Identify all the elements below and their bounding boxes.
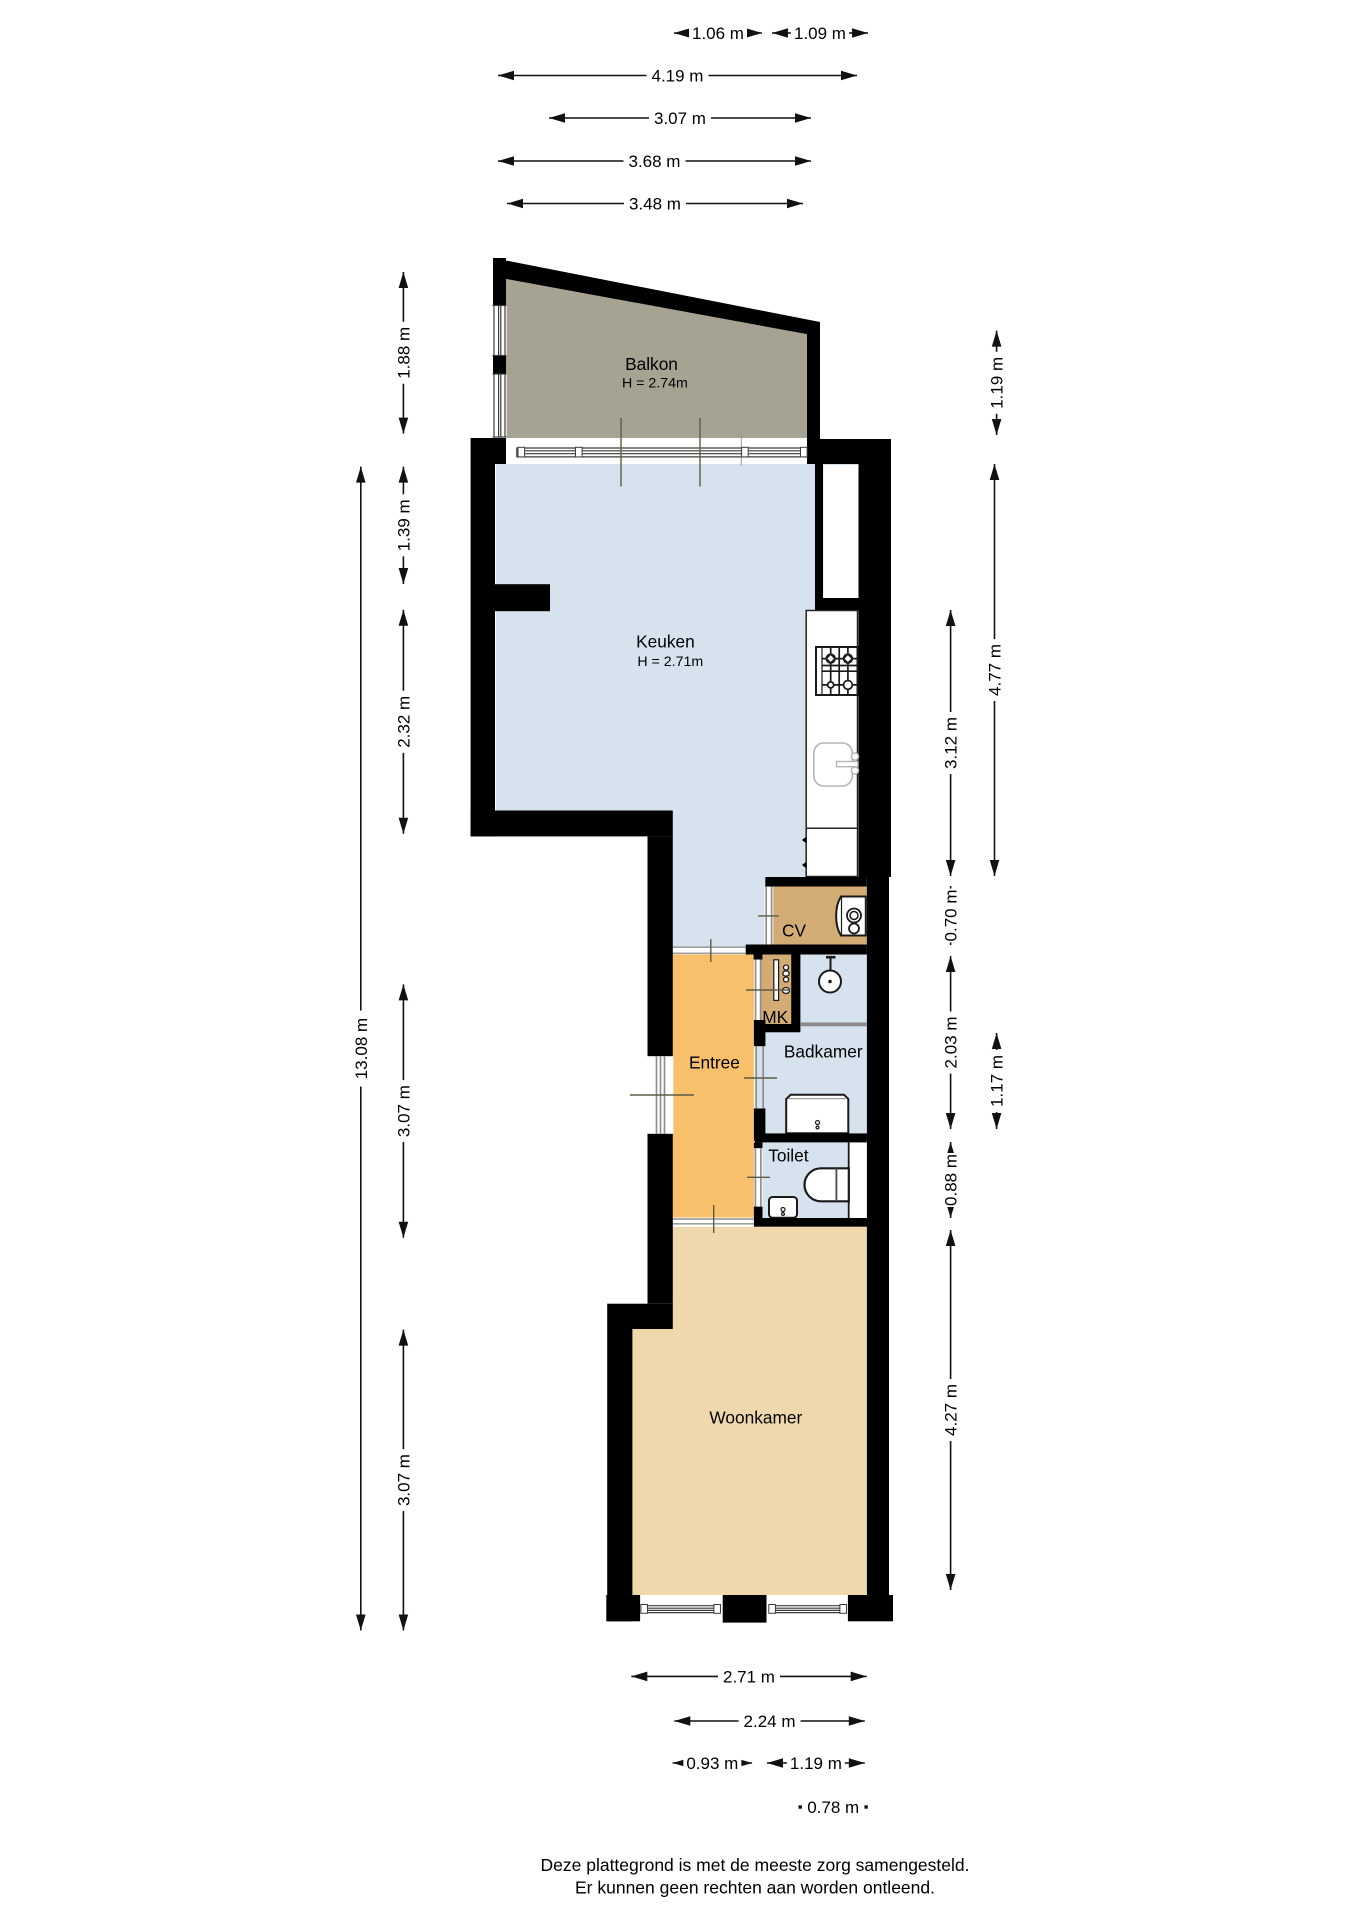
svg-text:1.39 m: 1.39 m xyxy=(394,499,413,551)
svg-text:Balkon: Balkon xyxy=(625,354,678,374)
svg-text:CV: CV xyxy=(782,921,806,941)
svg-text:0.70 m: 0.70 m xyxy=(942,890,961,942)
svg-text:1.09 m: 1.09 m xyxy=(794,24,846,43)
svg-text:H = 2.71m: H = 2.71m xyxy=(637,654,703,670)
svg-text:0.88 m: 0.88 m xyxy=(942,1154,961,1206)
svg-text:Toilet: Toilet xyxy=(768,1146,809,1166)
svg-text:2.32 m: 2.32 m xyxy=(394,696,413,748)
svg-text:2.03 m: 2.03 m xyxy=(942,1017,961,1069)
svg-text:1.19 m: 1.19 m xyxy=(988,357,1007,409)
svg-text:0.93 m: 0.93 m xyxy=(686,1754,738,1773)
svg-text:1.88 m: 1.88 m xyxy=(394,327,413,379)
svg-text:Deze plattegrond is met de mee: Deze plattegrond is met de meeste zorg s… xyxy=(541,1855,970,1875)
svg-text:2.24 m: 2.24 m xyxy=(744,1712,796,1731)
svg-text:Keuken: Keuken xyxy=(636,632,695,652)
svg-text:3.07 m: 3.07 m xyxy=(394,1085,413,1137)
svg-text:MK: MK xyxy=(762,1007,788,1027)
svg-text:4.19 m: 4.19 m xyxy=(652,67,704,86)
svg-text:3.12 m: 3.12 m xyxy=(942,717,961,769)
svg-text:2.71 m: 2.71 m xyxy=(723,1667,775,1686)
svg-text:Entree: Entree xyxy=(689,1052,740,1072)
svg-text:Badkamer: Badkamer xyxy=(784,1042,863,1062)
svg-text:3.68 m: 3.68 m xyxy=(629,152,681,171)
svg-text:0.78 m: 0.78 m xyxy=(807,1798,859,1817)
svg-text:4.27 m: 4.27 m xyxy=(942,1384,961,1436)
svg-text:1.19 m: 1.19 m xyxy=(790,1754,842,1773)
svg-text:3.07 m: 3.07 m xyxy=(394,1454,413,1506)
svg-text:3.07 m: 3.07 m xyxy=(654,109,706,128)
svg-text:4.77 m: 4.77 m xyxy=(986,644,1005,696)
svg-text:H = 2.74m: H = 2.74m xyxy=(622,375,688,391)
svg-text:1.17 m: 1.17 m xyxy=(988,1055,1007,1107)
svg-text:1.06 m: 1.06 m xyxy=(692,24,744,43)
svg-text:Woonkamer: Woonkamer xyxy=(709,1408,802,1428)
svg-text:13.08 m: 13.08 m xyxy=(352,1018,371,1079)
svg-text:Er kunnen geen rechten aan wor: Er kunnen geen rechten aan worden ontlee… xyxy=(575,1878,935,1898)
svg-text:3.48 m: 3.48 m xyxy=(629,195,681,214)
